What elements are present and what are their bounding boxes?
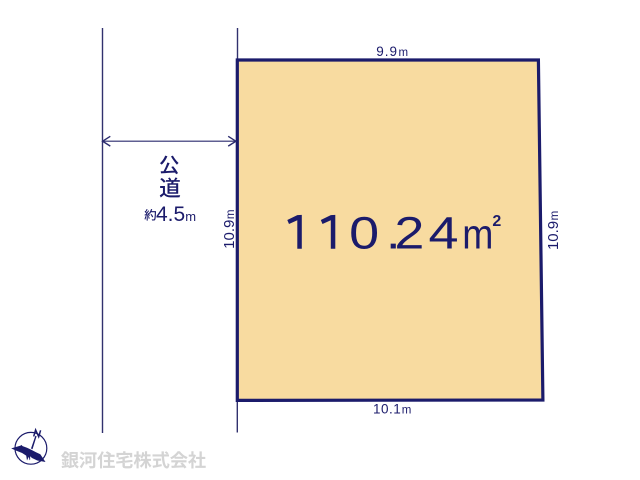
svg-text:9.9m: 9.9m <box>376 44 409 59</box>
svg-text:0.24: 0.24 <box>349 208 458 259</box>
svg-text:10.1m: 10.1m <box>373 402 412 417</box>
svg-text:2: 2 <box>492 213 501 230</box>
svg-text:m: m <box>462 212 493 258</box>
